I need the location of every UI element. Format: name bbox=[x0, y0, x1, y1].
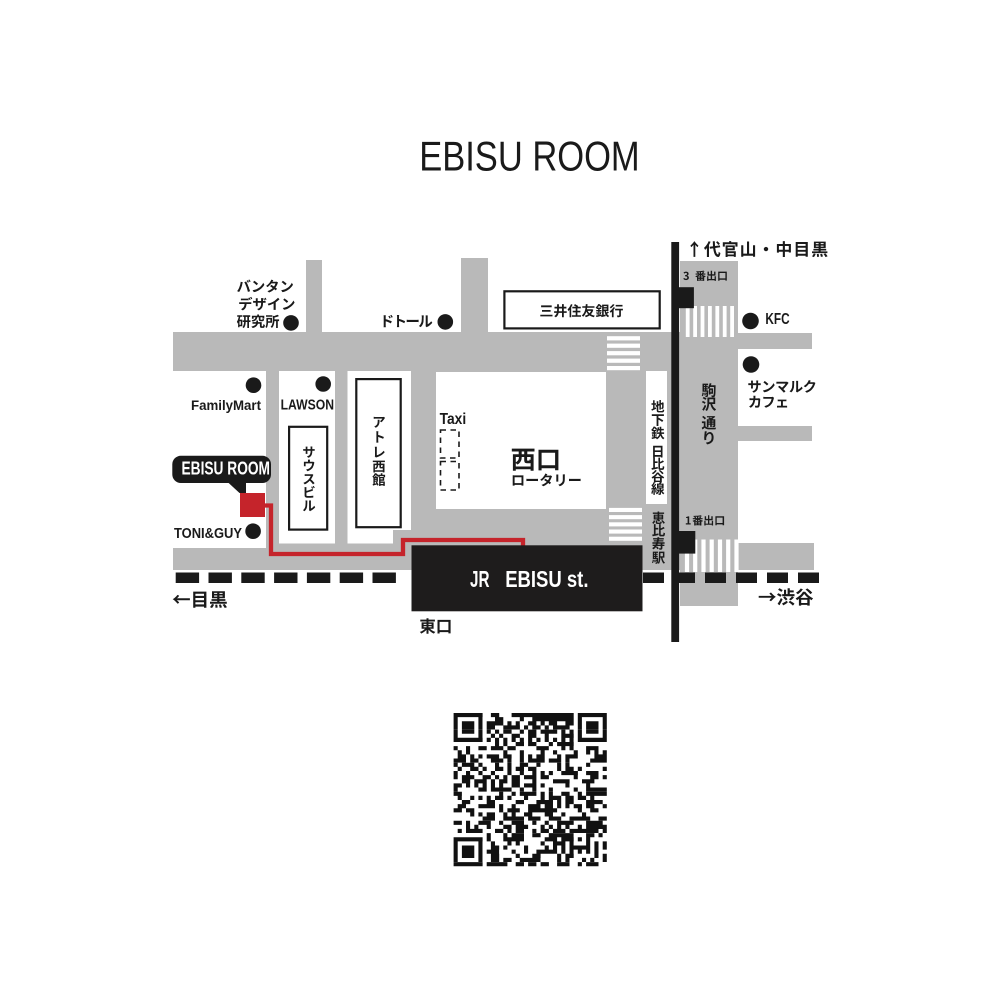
svg-text:FamilyMart: FamilyMart bbox=[191, 397, 261, 413]
svg-text:EBISU ROOM: EBISU ROOM bbox=[182, 458, 271, 478]
svg-text:EBISU ROOM: EBISU ROOM bbox=[419, 133, 640, 180]
svg-text:Taxi: Taxi bbox=[440, 411, 467, 428]
svg-text:EBISU st.: EBISU st. bbox=[505, 566, 588, 592]
svg-text:JR: JR bbox=[470, 566, 490, 592]
svg-text:TONI&GUY: TONI&GUY bbox=[174, 526, 242, 542]
svg-text:KFC: KFC bbox=[765, 311, 790, 328]
svg-text:LAWSON: LAWSON bbox=[281, 397, 334, 413]
